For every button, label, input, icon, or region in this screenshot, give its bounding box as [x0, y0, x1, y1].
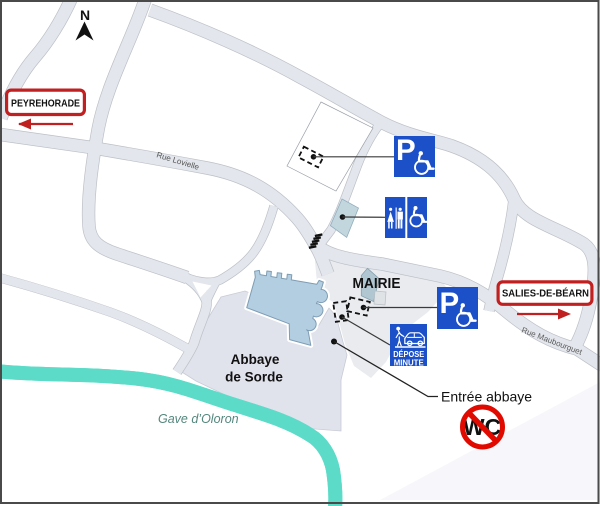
svg-text:Abbaye: Abbaye — [231, 352, 280, 367]
svg-text:PEYREHORADE: PEYREHORADE — [11, 97, 80, 109]
svg-text:P: P — [440, 287, 460, 320]
svg-text:Entrée abbaye: Entrée abbaye — [441, 389, 532, 405]
svg-text:DÉPOSE: DÉPOSE — [393, 350, 425, 359]
svg-text:MAIRIE: MAIRIE — [353, 276, 401, 292]
svg-text:MINUTE: MINUTE — [394, 359, 425, 368]
svg-text:SALIES-DE-BÉARN: SALIES-DE-BÉARN — [502, 287, 589, 300]
svg-text:Gave d’Oloron: Gave d’Oloron — [158, 412, 239, 426]
svg-text:P: P — [396, 134, 416, 167]
svg-text:N: N — [80, 7, 90, 23]
svg-text:de Sorde: de Sorde — [225, 370, 283, 385]
